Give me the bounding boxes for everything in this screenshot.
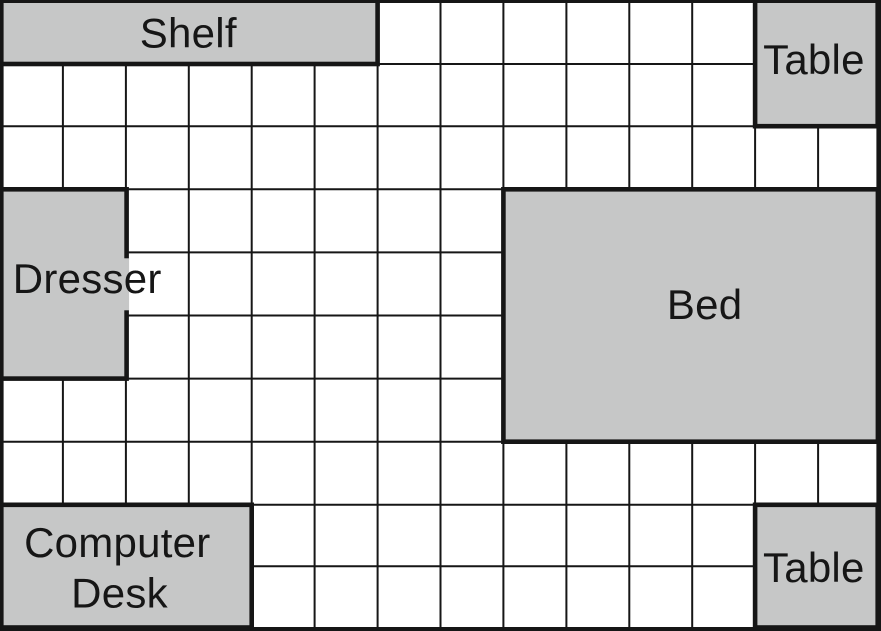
- svg-text:Dresser: Dresser: [13, 255, 162, 302]
- svg-text:Shelf: Shelf: [140, 10, 237, 57]
- svg-text:Table: Table: [763, 544, 865, 591]
- svg-text:Table: Table: [763, 36, 865, 83]
- svg-text:Computer: Computer: [24, 519, 210, 566]
- svg-text:Desk: Desk: [71, 569, 168, 616]
- svg-text:Bed: Bed: [667, 281, 742, 328]
